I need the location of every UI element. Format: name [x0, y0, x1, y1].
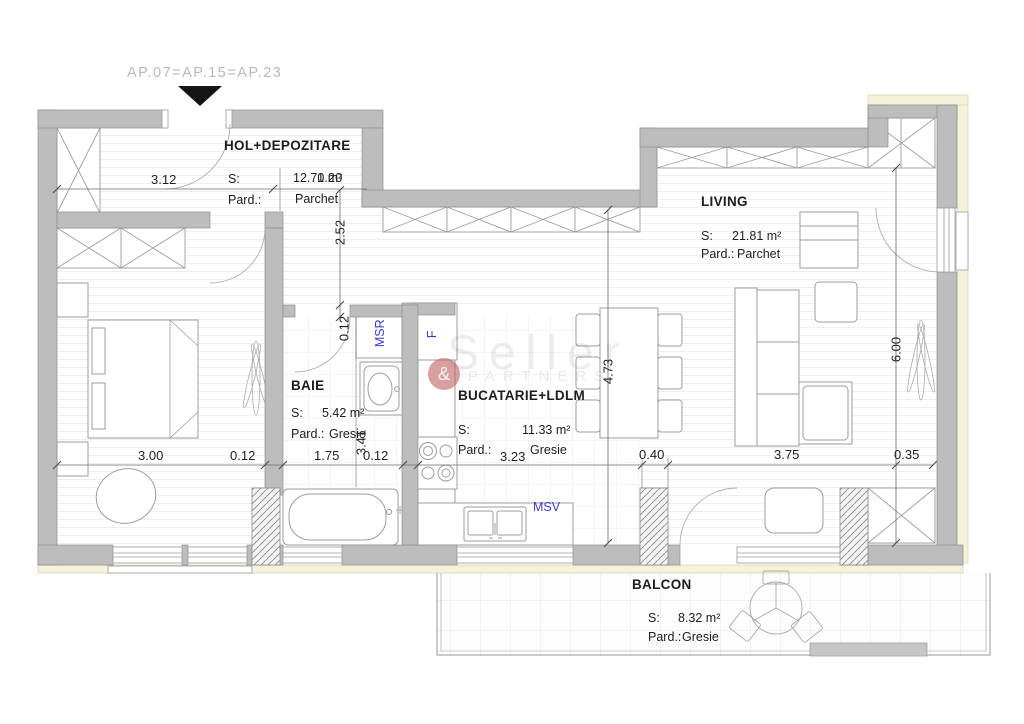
area-label-balcony: S: [648, 612, 660, 625]
dim-bedroom-width: 3.00 [138, 449, 163, 462]
kitchen-sink [464, 507, 526, 541]
area-value-living: 21.81 m² [732, 230, 781, 243]
tv-cabinet [800, 212, 858, 268]
dim-kitchen-width: 3.23 [500, 450, 525, 463]
watermark-ampersand-icon: & [428, 358, 460, 390]
floor-label-bath: Pard.: [291, 428, 324, 441]
entrance-marker-icon [178, 86, 222, 106]
wardrobe-hall-row [383, 207, 640, 232]
floor-value-living: Parchet [737, 248, 780, 261]
dim-living-depth: 6.00 [890, 333, 903, 367]
area-label-living: S: [701, 230, 713, 243]
dim-hall-depth: 2.52 [334, 216, 347, 250]
area-value-bath: 5.42 m² [322, 407, 364, 420]
wardrobe-bottom-right [868, 488, 935, 543]
coffee-table [765, 488, 823, 533]
room-name-kitchen: BUCATARIE+LDLM [458, 389, 585, 403]
apartment-label: AP.07=AP.15=AP.23 [127, 66, 282, 81]
bath-sink [360, 362, 403, 415]
dim-wall-b: 0.12 [363, 449, 388, 462]
floor-label-kitchen: Pard.: [458, 444, 491, 457]
area-label-kitchen: S: [458, 424, 470, 437]
area-label-bath: S: [291, 407, 303, 420]
floor-value-balcony: Gresie [682, 631, 719, 644]
wardrobe-hall-tall [57, 128, 100, 213]
dim-living-width: 3.75 [774, 448, 799, 461]
bathtub [283, 489, 404, 545]
room-name-living: LIVING [701, 195, 748, 209]
dim-wall-vertical: 0.12 [338, 312, 351, 346]
fridge-label: F [426, 323, 439, 345]
room-name-bath: BAIE [291, 379, 324, 393]
dim-wall-a: 0.12 [230, 449, 255, 462]
dim-kitchen-depth: 4.73 [602, 355, 615, 389]
wardrobe-bedroom [57, 228, 185, 268]
area-value-balcony: 8.32 m² [678, 612, 720, 625]
area-value-kitchen: 11.33 m² [522, 424, 570, 437]
floor-value-hall: Parchet [295, 193, 338, 206]
armchair-living [815, 282, 857, 322]
balcony-planter [810, 643, 927, 656]
dim-door-120: 1.20 [317, 171, 342, 184]
dim-bath-width: 1.75 [314, 449, 339, 462]
room-name-hall: HOL+DEPOZITARE [224, 139, 351, 153]
floor-label-hall: Pard.: [228, 194, 261, 207]
floor-label-living: Pard.: [701, 248, 734, 261]
floor-value-kitchen: Gresie [530, 444, 567, 457]
watermark-sub: PARTNERS [468, 368, 612, 385]
dim-column-width: 0.40 [639, 448, 664, 461]
dishwasher-label: MSV [533, 501, 560, 514]
room-name-balcony: BALCON [632, 578, 692, 592]
floor-label-balcony: Pard.: [648, 631, 681, 644]
area-label-hall: S: [228, 173, 240, 186]
floor-plan: AP.07=AP.15=AP.23 Seller & PARTNERS HOL+… [0, 0, 1024, 724]
washer-label: MSR [374, 317, 387, 349]
hob [417, 437, 457, 489]
dim-wall-right: 0.35 [894, 448, 919, 461]
wardrobe-living-row [657, 147, 868, 168]
dim-hall-width: 3.12 [151, 173, 176, 186]
